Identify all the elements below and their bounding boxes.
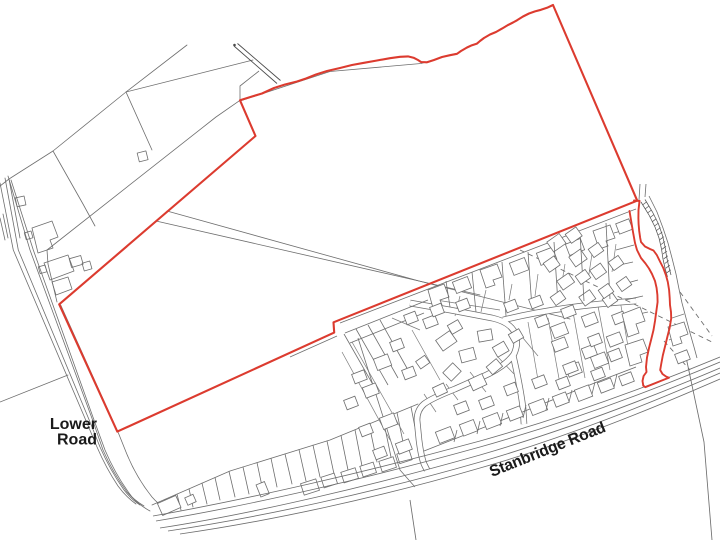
svg-text:Road: Road	[57, 432, 97, 449]
svg-text:Lower: Lower	[50, 416, 97, 433]
